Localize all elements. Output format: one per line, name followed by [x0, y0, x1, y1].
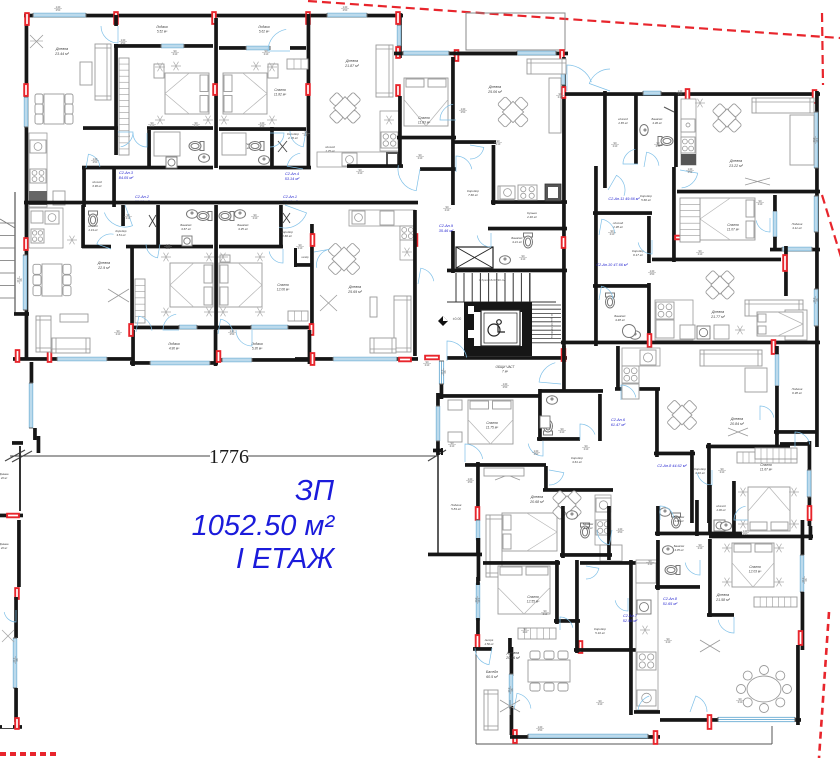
svg-text:Дневна23.22 м²: Дневна23.22 м² — [728, 159, 743, 168]
svg-text:C2-Ап.453.14 м²: C2-Ап.453.14 м² — [285, 172, 300, 181]
svg-text:Дневна25.06 м²: Дневна25.06 м² — [487, 85, 502, 94]
svg-text:Коридор5.10 м²: Коридор5.10 м² — [594, 627, 606, 635]
svg-text:Лоджия4.11 м²: Лоджия4.11 м² — [791, 222, 803, 230]
svg-text:Спалня12.06 м²: Спалня12.06 м² — [277, 283, 290, 292]
svg-text:Дневна20.84 м²: Дневна20.84 м² — [729, 417, 744, 426]
svg-text:Спалня12.55 м²: Спалня12.55 м² — [527, 595, 540, 604]
svg-text:Спалня12.03 м²: Спалня12.03 м² — [749, 565, 762, 574]
svg-text:ЗП: ЗП — [295, 475, 335, 507]
svg-text:Дневна22.9 м²: Дневна22.9 м² — [97, 261, 111, 270]
svg-text:C2-Ап.11 49.66 м²: C2-Ап.11 49.66 м² — [608, 197, 640, 201]
svg-text:Баня/wc3.36 м²: Баня/wc3.36 м² — [583, 522, 594, 530]
svg-text:килер: килер — [301, 256, 309, 259]
svg-text:1776: 1776 — [209, 446, 249, 468]
svg-text:Баня/wc4.05 м²: Баня/wc4.05 м² — [674, 544, 685, 552]
svg-text:C2-Ап.8 44.62 м²: C2-Ап.8 44.62 м² — [657, 464, 687, 468]
svg-text:Лоджия4.90 м²: Лоджия4.90 м² — [167, 342, 180, 350]
svg-text:Лоджия5.62 м²: Лоджия5.62 м² — [257, 25, 270, 33]
svg-text:Лоджия5.52 м²: Лоджия5.52 м² — [155, 25, 168, 33]
svg-text:У брат. 16.67/30 см: У брат. 16.67/30 см — [479, 278, 506, 282]
svg-text:Баня/wc4.36 м²: Баня/wc4.36 м² — [652, 117, 664, 125]
svg-text:±0.00: ±0.00 — [453, 317, 462, 321]
svg-text:Коридор3.51 м²: Коридор3.51 м² — [116, 229, 127, 237]
svg-text:Спалня11.75 м²: Спалня11.75 м² — [486, 421, 499, 430]
svg-text:Лоджия6.38 м²: Лоджия6.38 м² — [791, 387, 803, 395]
svg-text:C2-Ап.935.46 м²: C2-Ап.935.46 м² — [439, 224, 454, 233]
svg-text:Баня/wc3.67 м²: Баня/wc3.67 м² — [180, 223, 192, 231]
svg-text:Кухьня2.40 м²: Кухьня2.40 м² — [526, 211, 538, 219]
svg-text:Коридор7.60 м²: Коридор7.60 м² — [467, 189, 479, 197]
svg-text:Дневна20.68 м²: Дневна20.68 м² — [529, 495, 544, 504]
svg-text:Баня/wc4.48 м²: Баня/wc4.48 м² — [614, 314, 626, 322]
svg-text:I ЕТАЖ: I ЕТАЖ — [236, 543, 337, 575]
svg-text:C2-Ап.384.05 м²: C2-Ап.384.05 м² — [119, 171, 134, 180]
svg-text:Спалня11.67 м²: Спалня11.67 м² — [760, 463, 773, 472]
svg-text:C2-Ап.661.47 м²: C2-Ап.661.47 м² — [611, 418, 626, 427]
svg-text:Спалня11.82 м²: Спалня11.82 м² — [274, 88, 287, 97]
svg-text:к/изход2.00 м²: к/изход2.00 м² — [715, 504, 726, 512]
svg-text:Басейн60.5 м²: Басейн60.5 м² — [486, 670, 499, 679]
svg-text:Баня/wc4.05 м²: Баня/wc4.05 м² — [674, 515, 685, 523]
svg-text:Дневна25.69 м²: Дневна25.69 м² — [347, 285, 362, 294]
svg-text:Коридор2.76 м²: Коридор2.76 м² — [287, 132, 299, 140]
svg-text:Дневна21.87 м²: Дневна21.87 м² — [344, 59, 359, 68]
svg-text:Коридор3.61 м²: Коридор3.61 м² — [571, 456, 583, 464]
svg-text:C2-Ап.10 47.66 м²: C2-Ап.10 47.66 м² — [596, 263, 628, 267]
svg-text:Коридор5.60 м²: Коридор5.60 м² — [640, 194, 652, 202]
svg-text:Дневна21.58 м²: Дневна21.58 м² — [715, 593, 730, 602]
svg-text:к/изход2.65 м²: к/изход2.65 м² — [617, 117, 628, 125]
svg-text:C2-Ап.752.98 м²: C2-Ап.752.98 м² — [623, 614, 638, 623]
svg-text:Дневна21.77 м²: Дневна21.77 м² — [710, 310, 725, 319]
svg-text:Н брат.16.67/30 см: Н брат.16.67/30 см — [550, 314, 554, 338]
svg-text:Баня/wc4.21 м²: Баня/wc4.21 м² — [511, 236, 523, 244]
svg-text:Лоджия5.84 м²: Лоджия5.84 м² — [450, 503, 462, 511]
svg-text:Баня/wc3.35 м²: Баня/wc3.35 м² — [237, 223, 249, 231]
svg-text:Коридор2.60 м²: Коридор2.60 м² — [281, 230, 293, 238]
svg-text:Коридор4.10 м²: Коридор4.10 м² — [694, 467, 706, 475]
svg-text:C2-Ап.851.65 м²: C2-Ап.851.65 м² — [663, 597, 678, 606]
svg-text:Дневна20.86 м²: Дневна20.86 м² — [505, 651, 520, 660]
svg-text:Спалня11.07 м²: Спалня11.07 м² — [727, 223, 740, 232]
svg-text:Антре2.50 м²: Антре2.50 м² — [484, 638, 494, 646]
svg-text:л/изход0.90 м²: л/изход0.90 м² — [91, 180, 102, 188]
svg-text:Спалня11.83 м²: Спалня11.83 м² — [418, 116, 431, 125]
svg-text:Дневна23.44 м²: Дневна23.44 м² — [54, 47, 69, 56]
svg-text:1052.50 м²: 1052.50 м² — [192, 510, 336, 542]
